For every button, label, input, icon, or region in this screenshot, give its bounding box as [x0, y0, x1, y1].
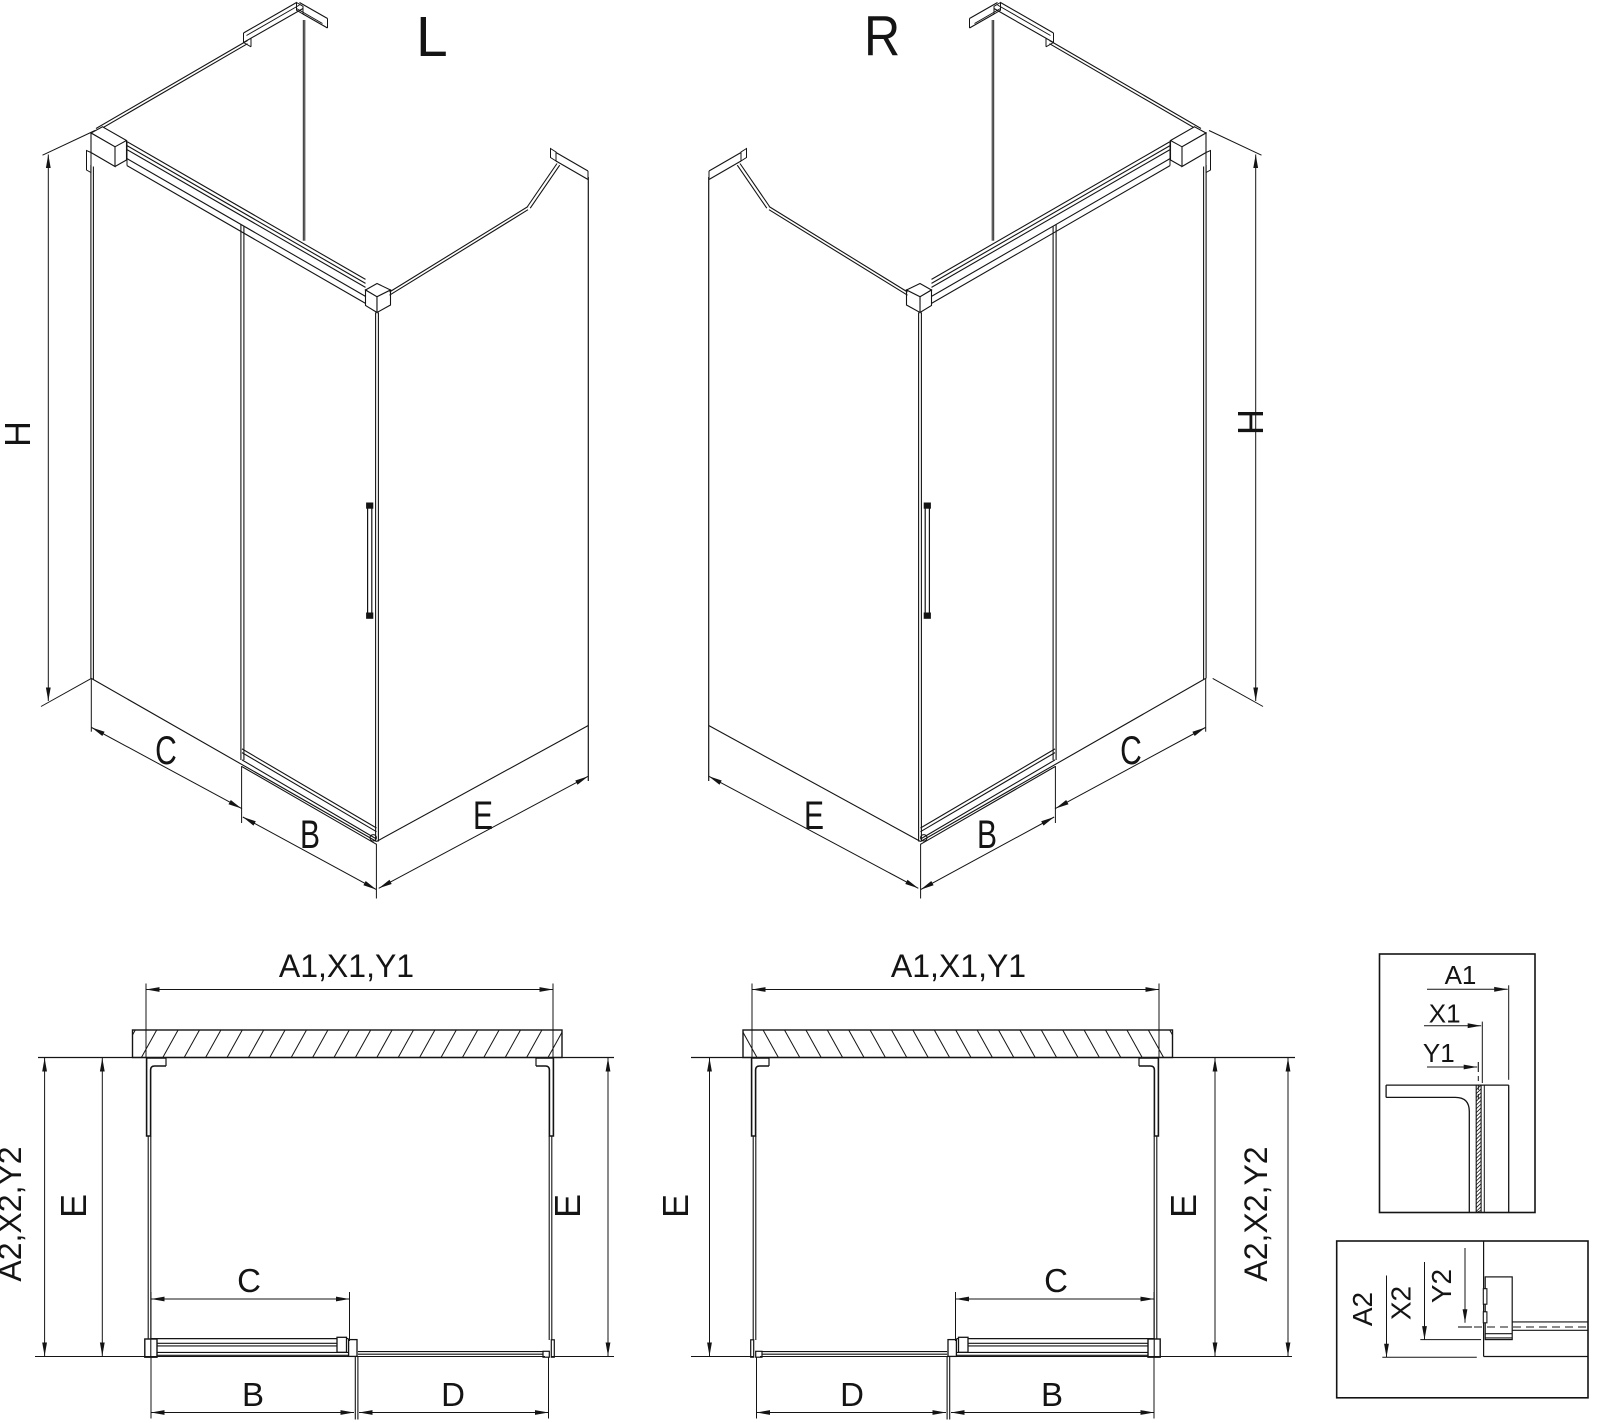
svg-text:A2,X2,Y2: A2,X2,Y2: [1238, 1146, 1274, 1281]
svg-text:X1: X1: [1429, 999, 1461, 1029]
svg-text:Y2: Y2: [1426, 1269, 1457, 1303]
svg-text:Y1: Y1: [1423, 1038, 1455, 1068]
svg-text:E: E: [53, 1194, 94, 1218]
svg-text:R: R: [864, 4, 900, 68]
svg-text:C: C: [155, 729, 177, 773]
svg-text:C: C: [237, 1262, 261, 1299]
svg-text:A1,X1,Y1: A1,X1,Y1: [279, 948, 414, 984]
svg-text:B: B: [300, 813, 320, 857]
svg-text:D: D: [441, 1376, 465, 1413]
svg-text:D: D: [840, 1376, 864, 1413]
svg-text:L: L: [416, 5, 448, 69]
svg-text:H: H: [1230, 409, 1271, 435]
svg-text:B: B: [977, 813, 997, 857]
svg-text:B: B: [1041, 1376, 1063, 1413]
svg-text:X2: X2: [1386, 1286, 1417, 1320]
svg-text:C: C: [1044, 1262, 1068, 1299]
svg-text:A2: A2: [1347, 1292, 1378, 1326]
svg-text:C: C: [1120, 729, 1142, 773]
svg-text:E: E: [547, 1194, 588, 1218]
svg-text:E: E: [1163, 1194, 1204, 1218]
svg-text:B: B: [242, 1376, 264, 1413]
svg-text:A1,X1,Y1: A1,X1,Y1: [891, 948, 1026, 984]
svg-text:A1: A1: [1445, 960, 1477, 990]
svg-text:E: E: [655, 1194, 696, 1218]
svg-text:E: E: [473, 794, 493, 838]
svg-text:E: E: [804, 794, 824, 838]
svg-text:A2,X2,Y2: A2,X2,Y2: [0, 1146, 28, 1281]
svg-text:H: H: [0, 421, 38, 447]
